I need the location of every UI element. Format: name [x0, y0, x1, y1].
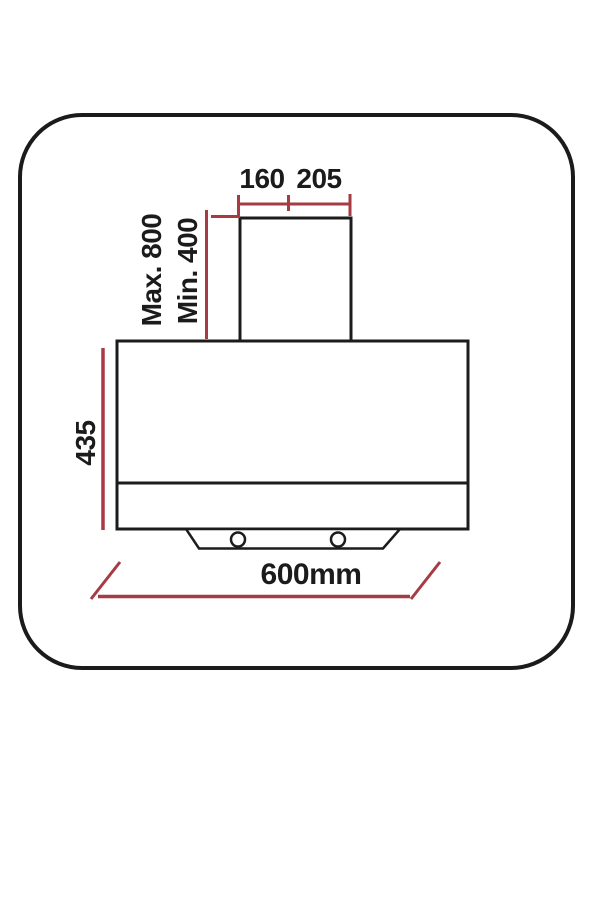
overall-width-label: 600mm [261, 560, 362, 590]
chimney-duct-outline [240, 218, 351, 341]
lamp-circle-left [231, 533, 245, 547]
mount-max-label: Max. 800 [138, 214, 166, 327]
product-outline-group [117, 218, 468, 549]
lamp-circle-right [331, 533, 345, 547]
hood-bottom-trapezoid [186, 529, 400, 549]
diagram-canvas: 160 205 Max. 800 Min. 400 435 600mm [0, 0, 600, 900]
overall-width-slash-left [91, 562, 120, 599]
duct-width-right-label: 205 [296, 165, 341, 193]
hood-body-outline [117, 341, 468, 529]
overall-width-slash-right [411, 562, 440, 599]
mount-min-label: Min. 400 [174, 218, 202, 324]
duct-width-left-label: 160 [239, 165, 284, 193]
body-height-label: 435 [72, 420, 100, 465]
